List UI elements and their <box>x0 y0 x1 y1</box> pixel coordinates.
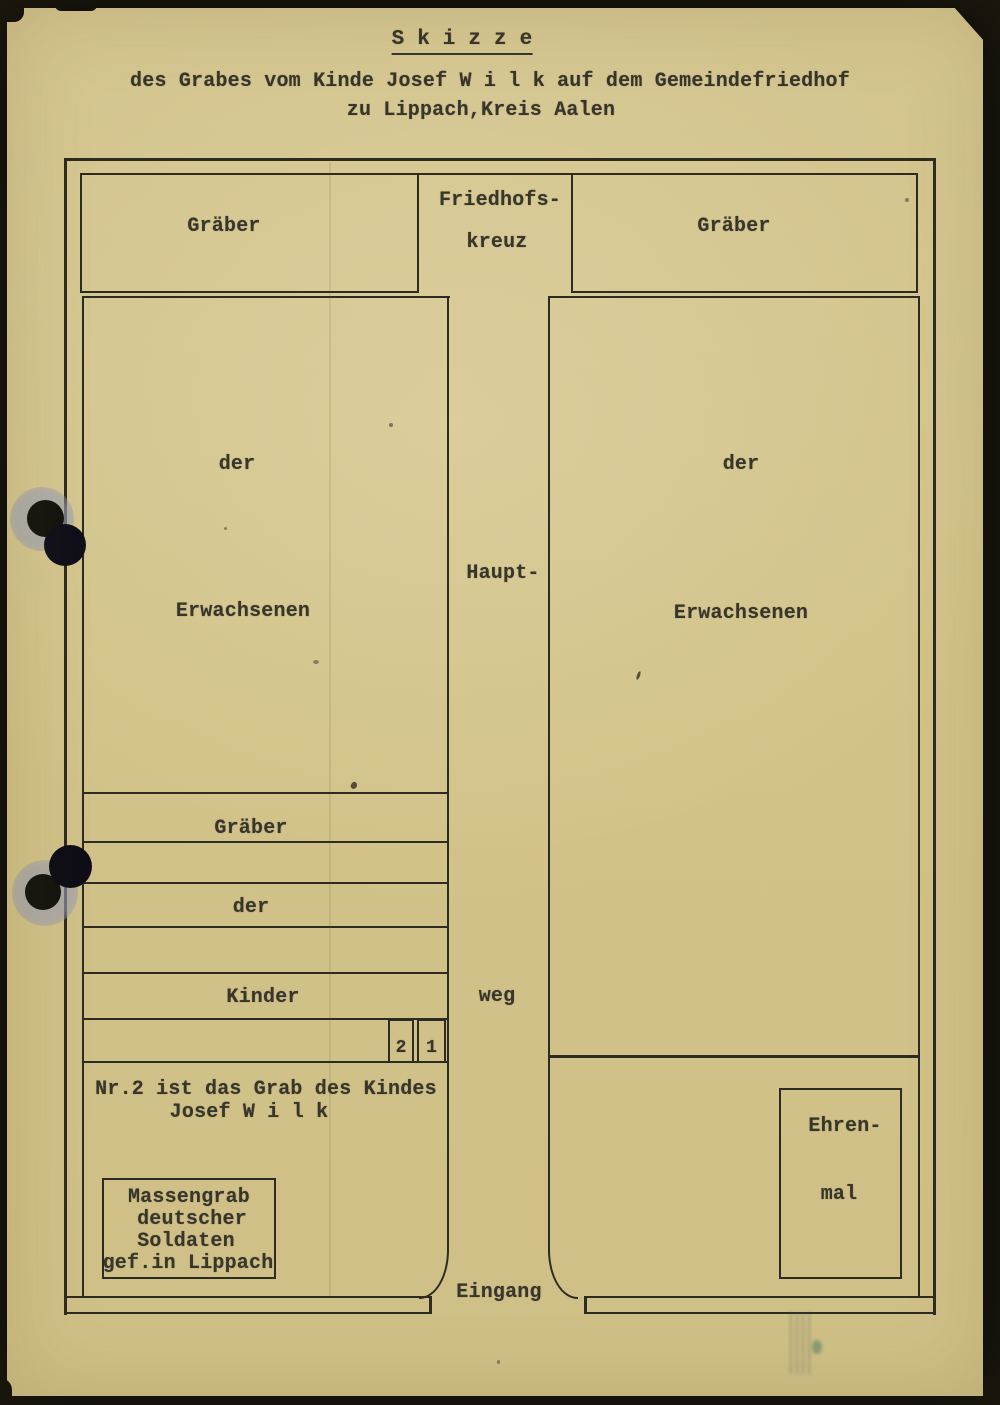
main-path-word2: weg <box>479 985 516 1008</box>
left-field-bottom-curve <box>419 1250 449 1299</box>
punch-hole-shadow-bottom <box>49 845 92 888</box>
scan-edge-right <box>983 0 1000 1405</box>
row-line-4 <box>82 926 449 928</box>
paper-crease <box>329 162 331 1297</box>
row-line-5 <box>82 972 449 974</box>
grave-cell-2: 2 <box>388 1019 414 1063</box>
ink-speck <box>636 671 642 680</box>
cross-box-right-line <box>571 173 573 293</box>
cemetery-cross-label-line1: Friedhofs- <box>439 189 561 212</box>
cross-box-left-line <box>417 173 419 293</box>
green-smudge <box>812 1340 822 1354</box>
top-band-bottom-right <box>572 291 918 293</box>
scan-mark-top <box>55 0 97 11</box>
outer-wall-top <box>64 158 936 161</box>
bottom-wall-right-segment <box>584 1296 936 1314</box>
scan-edge-top <box>0 0 1000 8</box>
right-field-left-line <box>548 296 550 1252</box>
row-line-1 <box>82 792 449 794</box>
row-line-3 <box>82 882 449 884</box>
right-field-divider-line <box>548 1055 920 1058</box>
ink-speck <box>497 1360 500 1364</box>
entrance-label: Eingang <box>456 1281 541 1304</box>
note-line2: Josef W i l k <box>170 1101 329 1124</box>
left-field-word2: Erwachsenen <box>176 600 310 623</box>
right-field-word1: der <box>723 453 760 476</box>
scan-edge-bottom <box>0 1396 1000 1405</box>
left-field-top-line <box>82 296 450 298</box>
ink-speck <box>224 527 227 530</box>
top-band-left-line <box>80 173 82 293</box>
right-field-word2: Erwachsenen <box>674 602 808 625</box>
main-path-word1: Haupt- <box>466 562 539 585</box>
ink-speck <box>349 781 358 790</box>
scan-corner-bottom-left <box>0 1378 12 1405</box>
top-right-graves-label: Gräber <box>697 215 770 238</box>
ink-speck <box>389 423 393 427</box>
cemetery-cross-label-line2: kreuz <box>466 231 527 254</box>
right-field-bottom-curve <box>548 1250 578 1299</box>
outer-wall-right <box>933 158 936 1315</box>
bottom-wall-left-segment <box>64 1296 432 1314</box>
left-field-right-line <box>447 296 449 1252</box>
scanned-document-page: S k i z z e des Grabes vom Kinde Josef W… <box>0 0 1000 1405</box>
left-field-word1: der <box>219 453 256 476</box>
top-band-bottom-left <box>80 291 419 293</box>
mass-grave-line2: deutscher <box>137 1208 247 1231</box>
left-field-left-line <box>82 296 84 1298</box>
mass-grave-line4: gef.in Lippach <box>103 1252 274 1275</box>
ink-speck <box>582 100 587 104</box>
scan-edge-left <box>0 0 7 1405</box>
top-left-graves-label: Gräber <box>187 215 260 238</box>
gray-smudge <box>790 1312 810 1374</box>
scan-corner-cut-top-right <box>953 6 985 42</box>
ink-speck <box>313 660 319 664</box>
punch-hole-shadow-top <box>44 524 86 566</box>
right-field-top-line <box>548 296 920 298</box>
mass-grave-line3: Soldaten <box>137 1230 235 1253</box>
memorial-line2: mal <box>821 1183 858 1206</box>
outer-wall-left <box>64 158 67 1315</box>
child-rows-label-2: der <box>233 896 270 919</box>
child-rows-label-1: Gräber <box>214 817 287 840</box>
memorial-line1: Ehren- <box>808 1115 881 1138</box>
mass-grave-line1: Massengrab <box>128 1186 250 1209</box>
ink-speck <box>905 198 909 202</box>
top-band-top-line <box>80 173 918 175</box>
top-band-right-line <box>916 173 918 293</box>
subtitle-line1: des Grabes vom Kinde Josef W i l k auf d… <box>130 70 850 93</box>
grave-cell-1: 1 <box>417 1019 446 1063</box>
note-line1: Nr.2 ist das Grab des Kindes <box>95 1078 437 1101</box>
scan-corner-top-left <box>0 0 24 22</box>
page-title: S k i z z e <box>392 28 533 55</box>
child-rows-label-3: Kinder <box>226 986 299 1009</box>
row-line-2 <box>82 841 449 843</box>
right-field-right-line <box>918 296 920 1298</box>
subtitle-line2: zu Lippach,Kreis Aalen <box>347 99 615 122</box>
